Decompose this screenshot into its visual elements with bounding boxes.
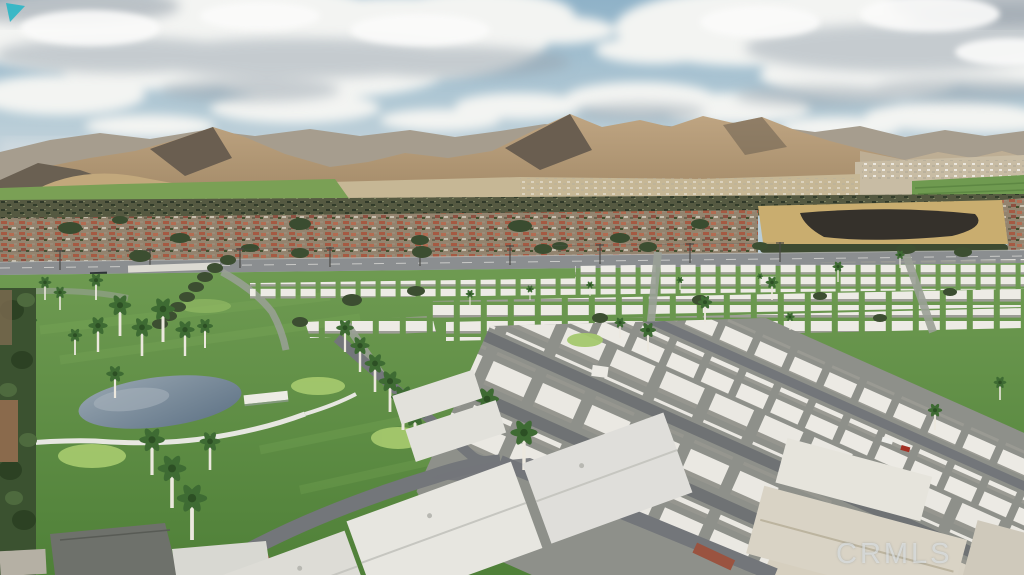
watermark: CRMLS [836,540,953,569]
burnt-field [758,200,1008,253]
aerial-photo: CRMLS [0,0,1024,575]
crmls-logo-accent [0,0,28,26]
putting-green [58,444,126,468]
burn-scar [800,209,978,240]
dirt-patch [0,400,18,462]
putting-green [291,377,345,395]
putting-green [567,333,603,347]
